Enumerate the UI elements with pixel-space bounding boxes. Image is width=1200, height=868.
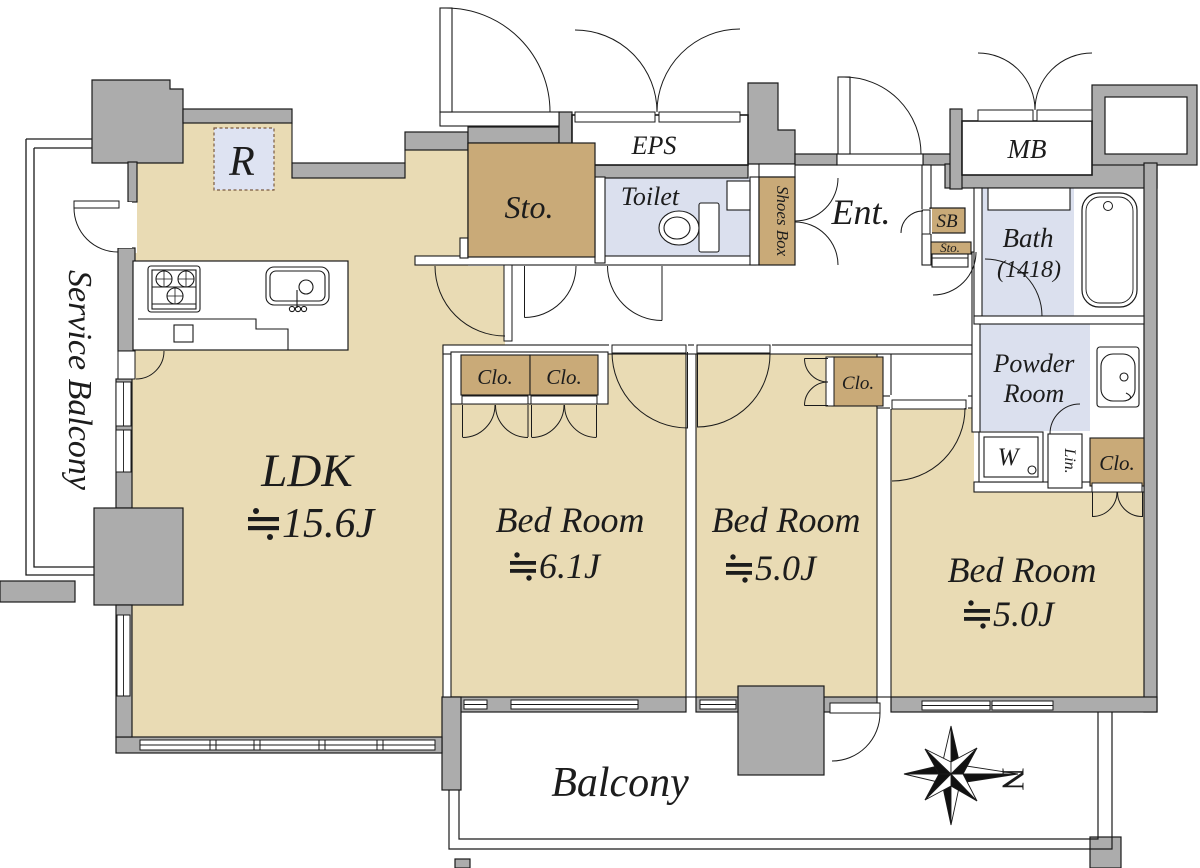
svg-text:Toilet: Toilet bbox=[621, 182, 680, 211]
svg-text:SB: SB bbox=[936, 211, 958, 232]
svg-text:Service Balcony: Service Balcony bbox=[61, 270, 98, 491]
svg-text:Sto.: Sto. bbox=[505, 189, 554, 225]
svg-text:15.6J: 15.6J bbox=[282, 501, 377, 547]
svg-text:Powder: Powder bbox=[993, 349, 1076, 378]
svg-text:Clo.: Clo. bbox=[546, 365, 582, 389]
svg-text:Shoes Box: Shoes Box bbox=[773, 186, 792, 257]
svg-text:Lin.: Lin. bbox=[1061, 447, 1078, 473]
svg-text:(1418): (1418) bbox=[997, 257, 1061, 283]
svg-text:Clo.: Clo. bbox=[477, 365, 513, 389]
svg-text:Room: Room bbox=[1003, 379, 1065, 408]
svg-text:6.1J: 6.1J bbox=[539, 546, 602, 586]
svg-text:MB: MB bbox=[1007, 134, 1047, 164]
svg-text:Bed Room: Bed Room bbox=[496, 500, 645, 540]
svg-text:Clo.: Clo. bbox=[842, 373, 874, 394]
svg-text:5.0J: 5.0J bbox=[993, 594, 1056, 634]
svg-text:Bed Room: Bed Room bbox=[712, 500, 861, 540]
svg-text:EPS: EPS bbox=[631, 131, 677, 160]
svg-text:Balcony: Balcony bbox=[551, 760, 689, 806]
svg-text:5.0J: 5.0J bbox=[755, 548, 818, 588]
svg-text:Bath: Bath bbox=[1003, 223, 1054, 253]
svg-text:N: N bbox=[996, 767, 1032, 790]
svg-text:Ent.: Ent. bbox=[831, 192, 891, 232]
svg-text:Clo.: Clo. bbox=[1099, 451, 1135, 475]
svg-text:Sto.: Sto. bbox=[940, 240, 960, 255]
svg-text:LDK: LDK bbox=[260, 445, 355, 497]
svg-text:R: R bbox=[228, 139, 255, 185]
svg-text:W: W bbox=[998, 444, 1021, 471]
svg-text:Bed Room: Bed Room bbox=[948, 550, 1097, 590]
